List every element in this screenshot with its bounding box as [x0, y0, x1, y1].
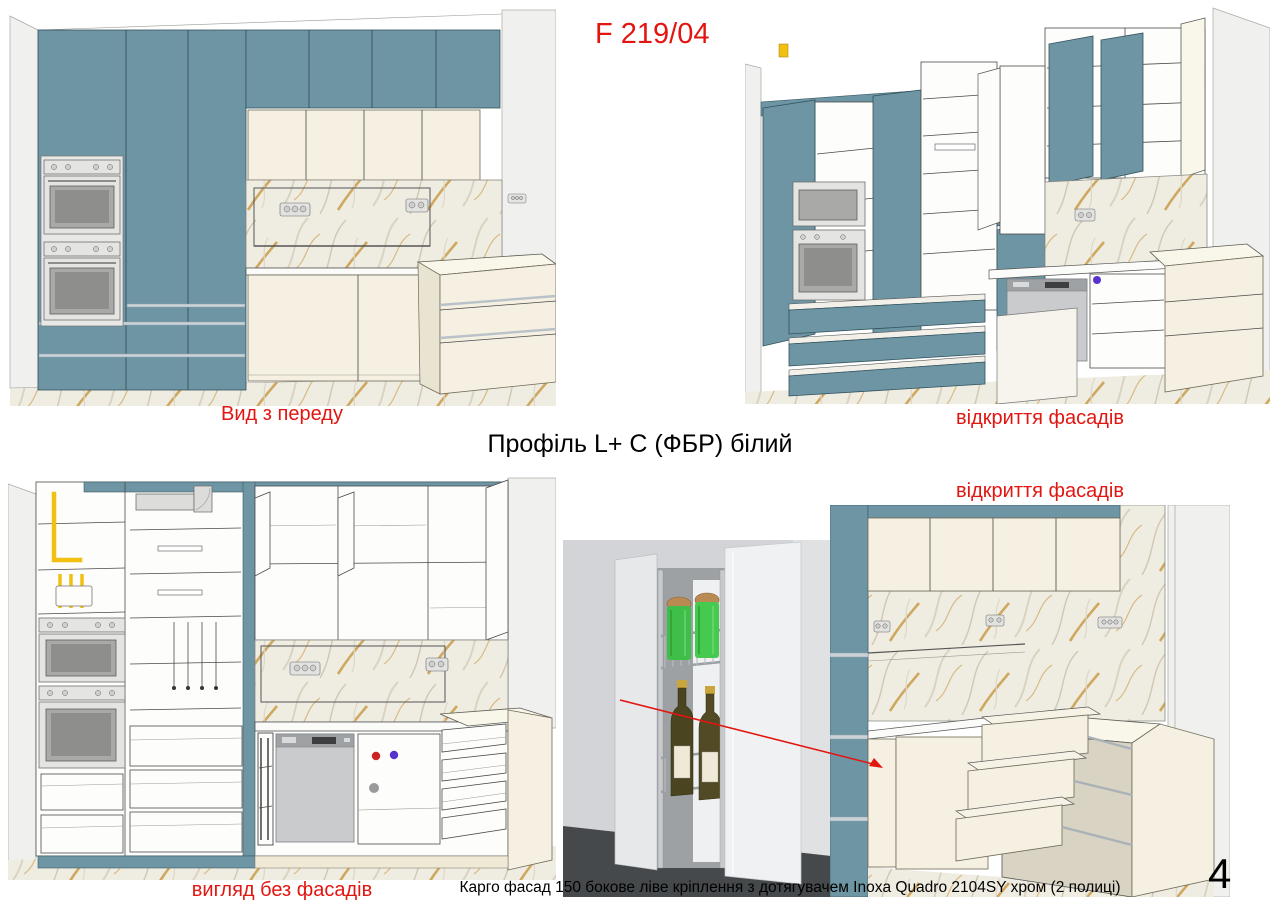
built-in-ovens — [41, 156, 123, 326]
ovens-stacked — [39, 618, 125, 768]
dishwasher — [997, 279, 1087, 404]
socket-double — [1075, 209, 1095, 221]
vent-duct — [136, 494, 194, 510]
dishwasher — [276, 734, 354, 842]
label-open-facades-top: відкриття фасадів — [880, 407, 1200, 429]
socket-triple — [290, 662, 320, 675]
left-wall — [745, 64, 761, 404]
page-number: 4 — [1208, 850, 1231, 898]
red-marker — [372, 752, 380, 760]
left-wall — [8, 484, 36, 868]
socket-triple — [280, 203, 310, 216]
label-front-view: Вид з переду — [8, 403, 556, 425]
profile-title: Профіль L+ C (ФБР) білий — [0, 430, 1280, 459]
base-cabinet-knobs — [358, 734, 440, 844]
cream-plinth — [255, 856, 508, 868]
cream-upper-cabinets — [868, 518, 1120, 591]
corner-base-unit — [1150, 244, 1263, 392]
kitchen-design-sheet: F 219/04 — [0, 0, 1280, 915]
project-code: F 219/04 — [595, 20, 709, 49]
marble-backsplash — [255, 640, 508, 722]
cargo-caption: Карго фасад 150 бокове ліве кріплення з … — [420, 879, 1160, 897]
label-open-facades-bottom: відкриття фасадів — [880, 480, 1200, 502]
middle-upper-white — [978, 66, 1045, 234]
teal-gable — [243, 482, 255, 856]
purple-marker — [1093, 276, 1101, 284]
corner-drawer-unit — [418, 254, 556, 394]
teal-upper-cabinets — [246, 30, 500, 108]
right-upper-open-cabinets — [1045, 18, 1205, 186]
socket-double — [406, 199, 428, 212]
view-front-render — [8, 4, 556, 406]
right-upper-cabinets — [255, 480, 508, 640]
gray-marker — [369, 783, 379, 793]
ovens-stacked — [793, 182, 865, 300]
purple-marker — [390, 751, 398, 759]
cream-upper-cabinets — [248, 110, 480, 180]
marble-backsplash — [246, 180, 526, 268]
yellow-marker — [779, 44, 788, 57]
cargo-wire-unit — [258, 733, 273, 845]
socket-side — [508, 194, 526, 203]
annotation-arrow — [585, 685, 895, 780]
view-no-facades-render — [8, 468, 556, 880]
socket-double — [426, 658, 448, 671]
teal-plinth — [38, 856, 255, 868]
right-wall — [508, 478, 556, 728]
gas-meter — [56, 586, 92, 606]
teal-cornice — [868, 505, 1120, 518]
open-drawers-teal — [789, 294, 985, 396]
corner-drawer-unit-open — [956, 707, 1214, 897]
view-open-facades-render — [745, 4, 1270, 404]
